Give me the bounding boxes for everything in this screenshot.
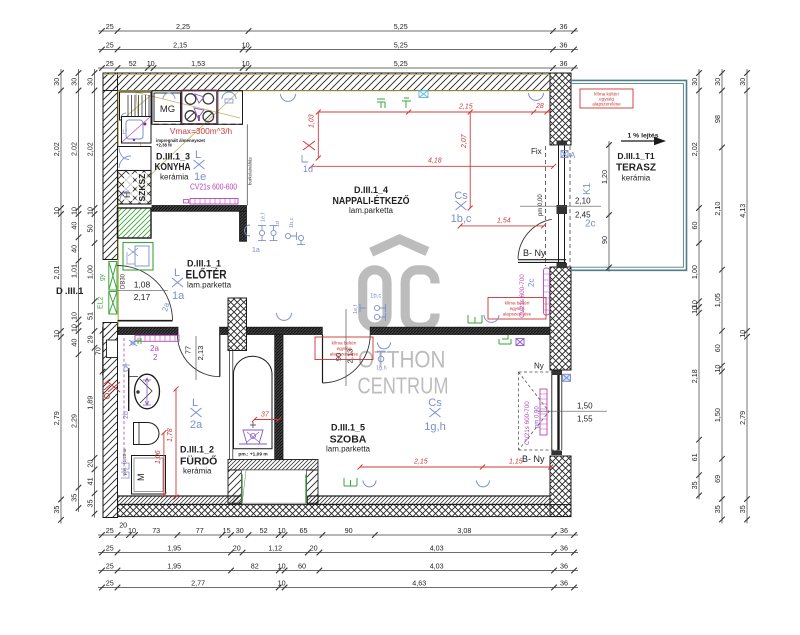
svg-text:1,54: 1,54	[497, 218, 511, 225]
svg-text:40: 40	[69, 245, 78, 253]
svg-text:25: 25	[106, 526, 114, 535]
svg-text:2,17: 2,17	[134, 292, 151, 302]
svg-text:52: 52	[129, 59, 137, 68]
svg-text:10: 10	[52, 207, 61, 215]
svg-text:2,13: 2,13	[196, 346, 205, 361]
svg-text:Ny: Ny	[534, 362, 544, 371]
svg-text:90: 90	[345, 526, 353, 535]
svg-text:2,10: 2,10	[575, 197, 591, 206]
svg-text:40: 40	[69, 222, 78, 230]
svg-text:30: 30	[690, 78, 699, 86]
svg-text:90: 90	[600, 236, 609, 244]
svg-text:1,12: 1,12	[268, 543, 282, 552]
svg-text:1a: 1a	[172, 290, 185, 302]
svg-text:D.III.1_4: D.III.1_4	[354, 185, 388, 195]
svg-text:CV21s 600-600: CV21s 600-600	[190, 182, 237, 192]
svg-text:30: 30	[52, 78, 61, 86]
svg-text:1,08: 1,08	[134, 280, 151, 290]
svg-text:20: 20	[119, 521, 127, 530]
svg-text:D.III.1_2: D.III.1_2	[180, 445, 214, 455]
svg-text:kerámia: kerámia	[160, 173, 189, 182]
svg-text:36: 36	[560, 543, 568, 552]
svg-text:1,50: 1,50	[577, 402, 593, 411]
svg-text:36: 36	[560, 22, 568, 31]
svg-text:2,10: 2,10	[713, 202, 722, 216]
svg-text:CV21s 600-700: CV21s 600-700	[519, 274, 526, 318]
svg-text:15: 15	[223, 526, 231, 535]
svg-text:CV21s 600-700: CV21s 600-700	[524, 401, 531, 445]
svg-text:2c: 2c	[585, 219, 596, 230]
svg-text:25: 25	[106, 543, 114, 552]
svg-text:82: 82	[251, 561, 259, 570]
svg-text:pm.: +1,09 m: pm.: +1,09 m	[238, 452, 267, 458]
svg-text:36: 36	[560, 578, 568, 587]
svg-text:TERASZ: TERASZ	[616, 162, 657, 174]
svg-text:69: 69	[713, 475, 722, 483]
svg-text:36: 36	[560, 526, 568, 535]
svg-text:kerámia: kerámia	[183, 467, 212, 476]
svg-text:1,55: 1,55	[577, 415, 593, 424]
svg-text:1,06: 1,06	[155, 450, 162, 464]
svg-text:10: 10	[713, 365, 722, 373]
svg-text:37: 37	[261, 412, 270, 419]
svg-text:lam.parketta: lam.parketta	[187, 281, 232, 290]
svg-text:35: 35	[52, 506, 61, 514]
svg-text:30: 30	[69, 78, 78, 86]
svg-text:+2,38 fé: +2,38 fé	[156, 143, 172, 148]
svg-text:Fix: Fix	[531, 147, 542, 156]
svg-text:D.III.1_5: D.III.1_5	[331, 423, 365, 433]
svg-text:1,78: 1,78	[167, 428, 174, 442]
svg-text:4,03: 4,03	[430, 561, 444, 570]
svg-text:1,01: 1,01	[69, 264, 78, 278]
svg-text:1b,c: 1b,c	[289, 217, 295, 228]
svg-text:pm 0,00: pm 0,00	[538, 194, 544, 216]
svg-text:10: 10	[278, 526, 286, 535]
svg-text:25: 25	[106, 59, 114, 68]
svg-text:burkolatváltás: burkolatváltás	[248, 156, 253, 185]
svg-text:Vmax=300m^3/h: Vmax=300m^3/h	[170, 126, 233, 136]
svg-text:Cs: Cs	[428, 397, 442, 409]
svg-text:20: 20	[310, 543, 318, 552]
svg-text:36: 36	[560, 561, 568, 570]
svg-text:73: 73	[152, 526, 160, 535]
svg-text:10: 10	[242, 40, 250, 49]
svg-text:61: 61	[690, 453, 699, 461]
svg-text:77: 77	[184, 346, 193, 354]
svg-text:D.III.1_1: D.III.1_1	[187, 259, 221, 269]
svg-text:1,95: 1,95	[167, 543, 181, 552]
svg-text:35: 35	[738, 505, 747, 513]
svg-text:25: 25	[106, 40, 114, 49]
svg-text:10: 10	[738, 330, 747, 338]
svg-text:20: 20	[85, 460, 94, 468]
svg-text:35: 35	[690, 481, 699, 489]
svg-text:1e,f: 1e,f	[353, 304, 359, 314]
svg-text:10: 10	[278, 561, 286, 570]
svg-text:65: 65	[300, 526, 308, 535]
svg-text:1g,h: 1g,h	[376, 366, 387, 372]
svg-text:10: 10	[147, 59, 155, 68]
svg-text:35: 35	[713, 505, 722, 513]
svg-text:2,02: 2,02	[85, 142, 94, 156]
svg-text:41: 41	[85, 477, 94, 485]
svg-text:2a: 2a	[150, 344, 159, 353]
svg-text:1b,c: 1b,c	[370, 294, 381, 300]
svg-text:klíma beltéri: klíma beltéri	[332, 341, 357, 346]
svg-text:1,00: 1,00	[690, 265, 699, 279]
svg-text:4,03: 4,03	[430, 543, 444, 552]
svg-text:OTTHON: OTTHON	[358, 347, 446, 374]
svg-text:60: 60	[298, 561, 306, 570]
svg-text:10: 10	[690, 306, 699, 314]
svg-text:egység: egység	[337, 346, 352, 351]
svg-text:Cs: Cs	[454, 190, 468, 202]
svg-text:35: 35	[85, 500, 94, 508]
svg-text:D.III.1_3: D.III.1_3	[156, 152, 190, 162]
svg-text:4,63: 4,63	[412, 578, 426, 587]
svg-text:4,18: 4,18	[428, 158, 442, 165]
svg-text:30: 30	[713, 78, 722, 86]
svg-text:10: 10	[128, 526, 136, 535]
svg-text:2,77: 2,77	[191, 578, 205, 587]
svg-text:1,15: 1,15	[509, 459, 523, 466]
svg-text:D.III.1: D.III.1	[56, 286, 84, 297]
svg-text:10: 10	[85, 207, 94, 215]
svg-text:1a: 1a	[252, 247, 260, 254]
svg-text:36: 36	[560, 40, 568, 49]
svg-text:1f: 1f	[122, 130, 127, 136]
svg-text:2,15: 2,15	[173, 40, 187, 49]
svg-text:30: 30	[85, 78, 94, 86]
svg-text:2,79: 2,79	[52, 411, 61, 425]
svg-text:2,02: 2,02	[69, 142, 78, 156]
svg-text:29: 29	[85, 335, 94, 343]
svg-text:SZKSZ: SZKSZ	[137, 174, 147, 202]
svg-text:1,00: 1,00	[85, 265, 94, 279]
svg-text:60: 60	[713, 344, 722, 352]
svg-text:2,29: 2,29	[69, 414, 78, 428]
svg-text:52: 52	[260, 526, 268, 535]
svg-text:2,01: 2,01	[52, 266, 61, 280]
svg-text:2,02: 2,02	[690, 142, 699, 156]
svg-text:3,08: 3,08	[457, 526, 471, 535]
svg-text:KONYHA: KONYHA	[155, 161, 191, 173]
svg-text:1d: 1d	[303, 164, 313, 174]
svg-text:kerámia: kerámia	[622, 174, 651, 183]
svg-text:D.III.1_T1: D.III.1_T1	[617, 151, 655, 161]
svg-text:2,25: 2,25	[176, 22, 190, 31]
svg-text:1b,c: 1b,c	[451, 213, 472, 225]
svg-text:2: 2	[153, 353, 158, 362]
svg-text:70: 70	[93, 347, 102, 355]
svg-text:10: 10	[69, 312, 78, 320]
svg-text:2a: 2a	[190, 419, 203, 431]
svg-text:5,25: 5,25	[394, 22, 408, 31]
svg-text:alapszerelése: alapszerelése	[592, 102, 621, 107]
svg-text:30: 30	[236, 526, 244, 535]
svg-text:lam.parketta: lam.parketta	[349, 206, 394, 215]
svg-text:pm 0,90: pm 0,90	[535, 406, 541, 428]
svg-text:10: 10	[69, 324, 78, 332]
svg-text:A: A	[570, 151, 576, 160]
svg-text:25: 25	[106, 578, 114, 587]
svg-text:alapszerelése: alapszerelése	[503, 312, 532, 317]
svg-text:L: L	[192, 397, 198, 409]
svg-text:60: 60	[690, 222, 699, 230]
svg-text:28: 28	[535, 103, 544, 110]
svg-text:alapszerelése: alapszerelése	[330, 352, 359, 357]
svg-text:1,03: 1,03	[309, 114, 316, 128]
svg-text:1d: 1d	[275, 221, 281, 227]
svg-text:10: 10	[242, 59, 250, 68]
svg-text:10: 10	[278, 578, 286, 587]
svg-text:2c: 2c	[527, 279, 536, 287]
svg-text:1,05: 1,05	[713, 293, 722, 307]
svg-text:K1: K1	[582, 182, 593, 195]
svg-text:51: 51	[85, 312, 94, 320]
svg-text:50: 50	[85, 225, 94, 233]
svg-text:2,15: 2,15	[458, 104, 473, 111]
svg-text:2,02: 2,02	[52, 142, 61, 156]
svg-text:5,25: 5,25	[394, 40, 408, 49]
svg-text:MG: MG	[160, 104, 175, 115]
svg-text:2,07: 2,07	[461, 133, 468, 149]
svg-text:L: L	[195, 149, 201, 161]
svg-text:2,15: 2,15	[413, 459, 428, 466]
svg-text:10: 10	[52, 330, 61, 338]
svg-text:B- Ny: B- Ny	[522, 454, 545, 464]
svg-text:lam.parketta: lam.parketta	[326, 445, 371, 454]
svg-text:1,53: 1,53	[191, 59, 205, 68]
svg-text:1g,h: 1g,h	[424, 421, 445, 433]
svg-text:M: M	[136, 474, 146, 482]
svg-text:77: 77	[196, 526, 204, 535]
svg-text:25: 25	[106, 22, 114, 31]
svg-text:36: 36	[560, 59, 568, 68]
svg-text:98: 98	[713, 115, 722, 123]
svg-text:20: 20	[233, 543, 241, 552]
svg-text:CENTRUM: CENTRUM	[358, 372, 449, 398]
svg-text:EL2: EL2	[98, 296, 105, 309]
svg-text:B- Ny: B- Ny	[523, 248, 546, 258]
svg-text:35: 35	[69, 494, 78, 502]
svg-text:10: 10	[69, 207, 78, 215]
svg-text:30: 30	[738, 78, 747, 86]
svg-text:1,50: 1,50	[713, 408, 722, 422]
svg-text:gy: gy	[99, 273, 106, 281]
svg-text:1,89: 1,89	[85, 396, 94, 410]
svg-text:L: L	[174, 267, 180, 279]
svg-text:pm.: +1,28 m: pm.: +1,28 m	[122, 448, 127, 475]
svg-text:2,79: 2,79	[738, 411, 747, 425]
svg-text:2,18: 2,18	[690, 369, 699, 383]
svg-text:1e,f: 1e,f	[261, 212, 267, 222]
svg-text:25: 25	[106, 561, 114, 570]
svg-text:5,25: 5,25	[394, 59, 408, 68]
svg-text:DB30: DB30	[121, 273, 127, 289]
svg-text:4,13: 4,13	[738, 204, 747, 218]
svg-text:1,20: 1,20	[600, 170, 609, 184]
svg-text:1,95: 1,95	[167, 561, 181, 570]
svg-text:40: 40	[69, 339, 78, 347]
